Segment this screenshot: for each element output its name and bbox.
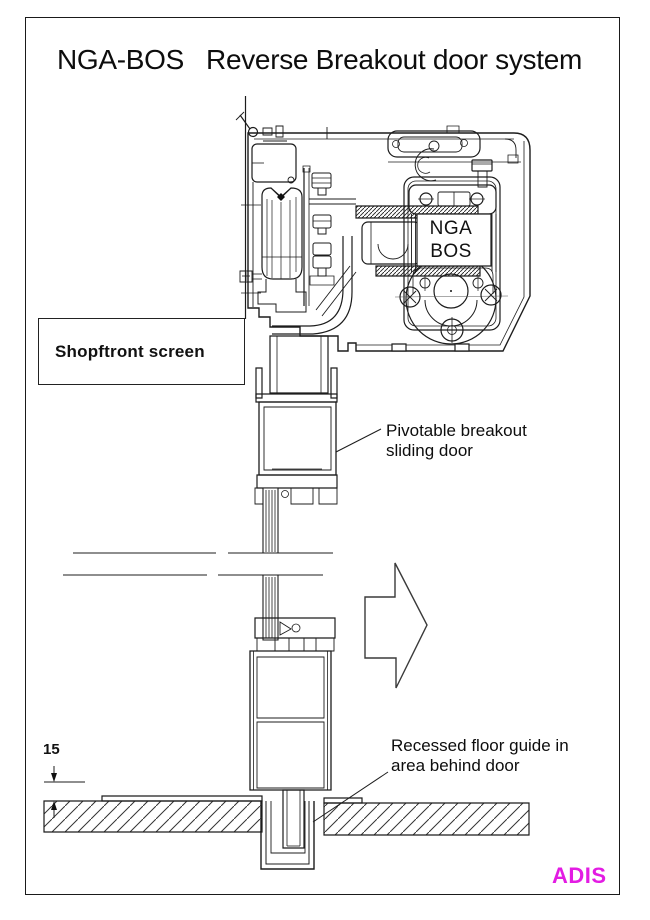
- sheet-title: NGA-BOS Reverse Breakout door system: [57, 44, 582, 76]
- shopfront-label: Shopftront screen: [55, 342, 205, 362]
- pivot-door-note: Pivotable breakout sliding door: [386, 421, 527, 461]
- operator-unit-label-line1: NGA: [407, 217, 495, 240]
- brand-logo: ADIS: [552, 863, 607, 889]
- dimension-15-label: 15: [43, 741, 60, 758]
- drawing-sheet: NGA-BOS Reverse Breakout door system Sho…: [0, 0, 650, 920]
- shopfront-label-box: Shopftront screen: [38, 318, 245, 385]
- pivot-door-note-line1: Pivotable breakout: [386, 421, 527, 441]
- floor-guide-note: Recessed floor guide in area behind door: [391, 736, 569, 776]
- pivot-door-note-line2: sliding door: [386, 441, 527, 461]
- operator-unit-label: NGA BOS: [407, 217, 495, 263]
- title-description: Reverse Breakout door system: [206, 44, 582, 76]
- operator-unit-label-line2: BOS: [407, 240, 495, 263]
- floor-guide-note-line2: area behind door: [391, 756, 569, 776]
- title-product: NGA-BOS: [57, 44, 184, 76]
- floor-guide-note-line1: Recessed floor guide in: [391, 736, 569, 756]
